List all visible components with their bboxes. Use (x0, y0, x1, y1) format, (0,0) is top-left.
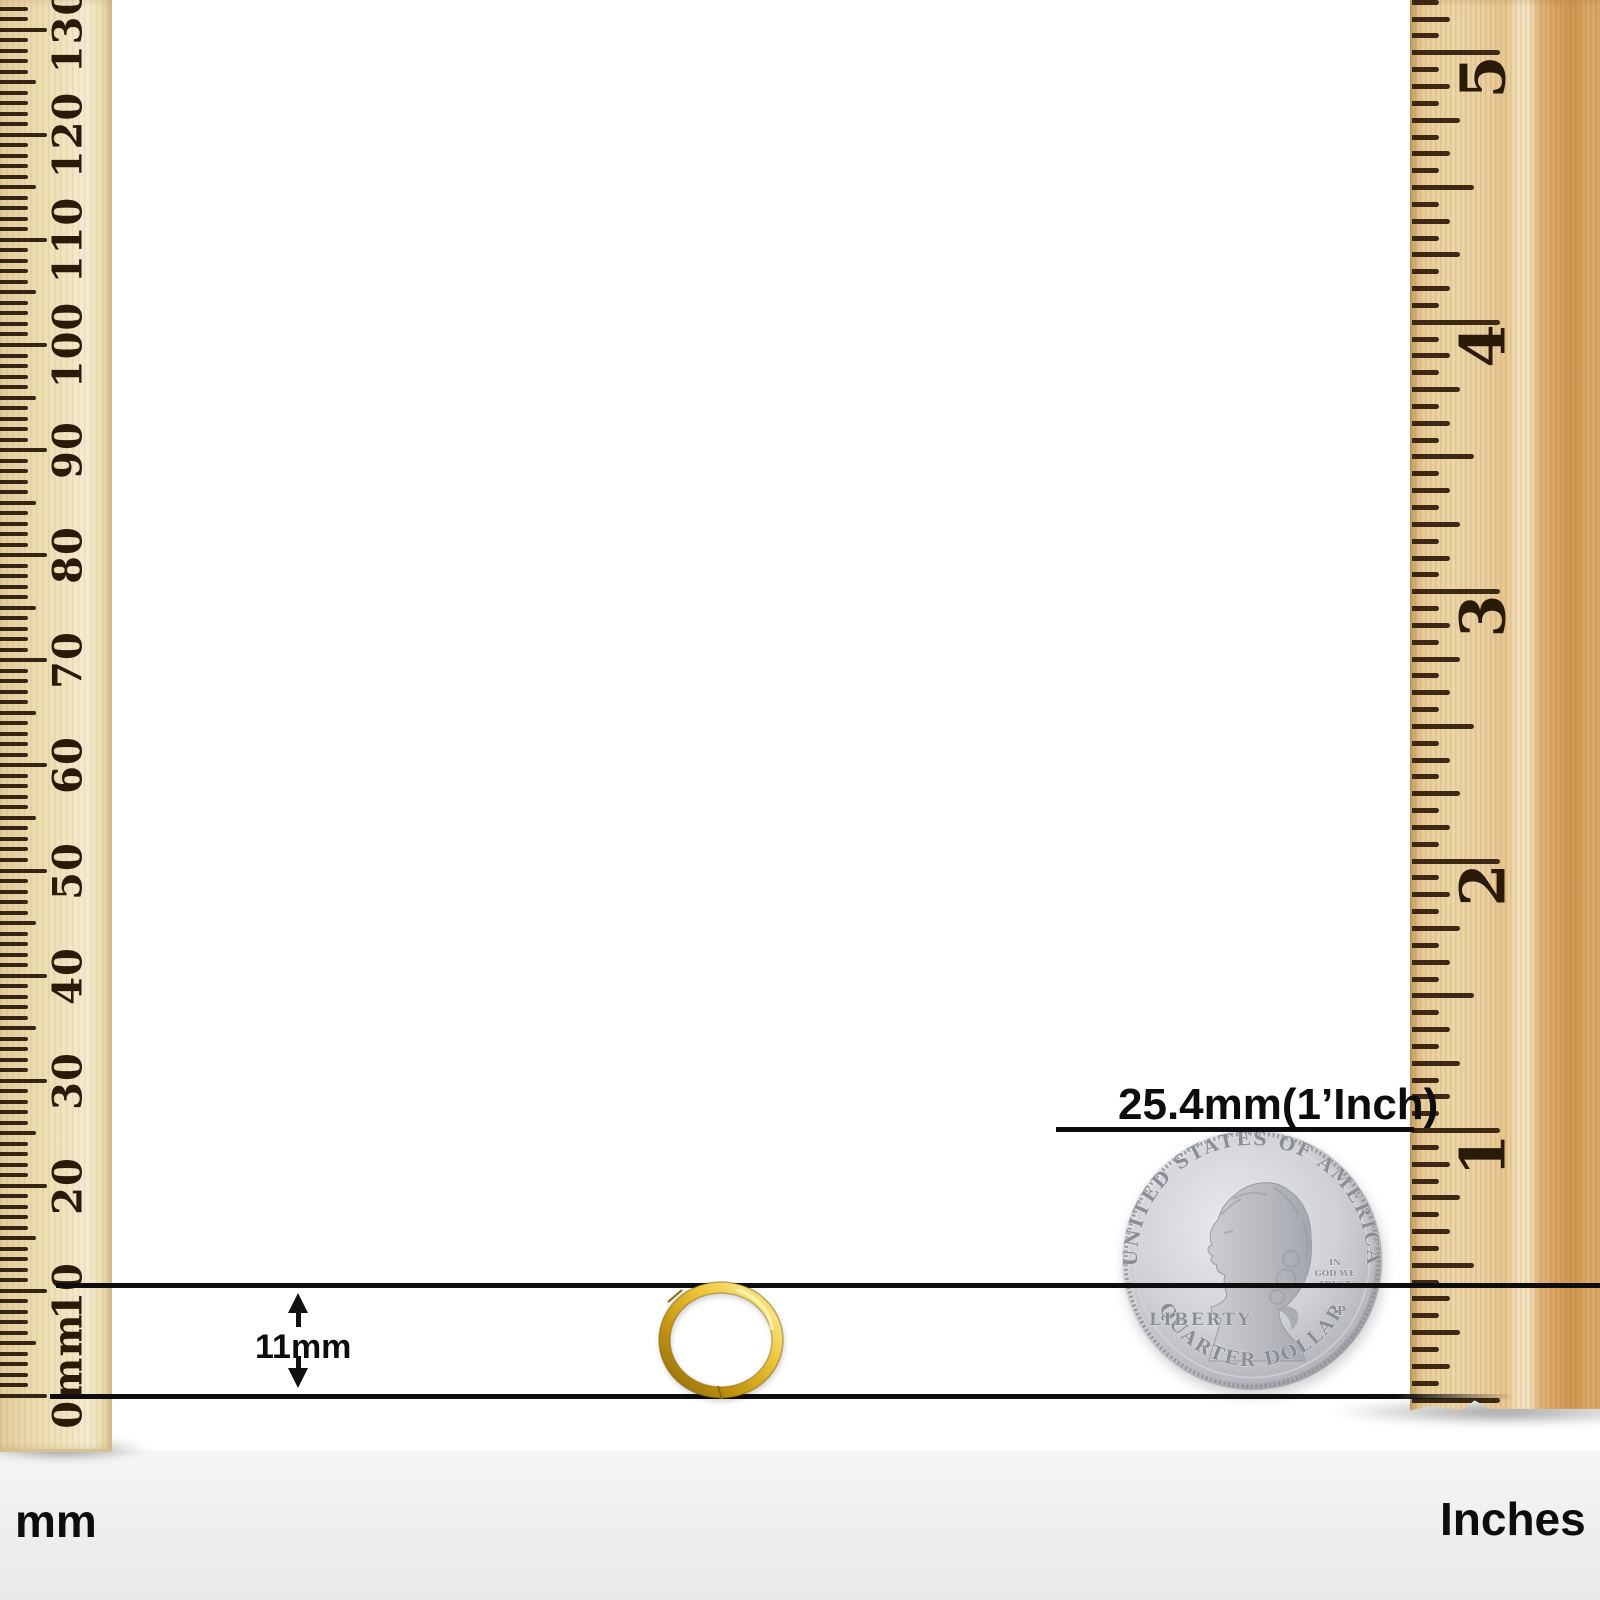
inch-ruler-tick (1412, 758, 1450, 763)
mm-ruler-tick (0, 259, 28, 263)
up-arrow-icon (288, 1293, 308, 1313)
mm-ruler-tick (0, 122, 28, 126)
mm-ruler-tick (0, 175, 28, 179)
mm-ruler-tick (0, 1058, 28, 1062)
mm-ruler-tick (0, 133, 47, 137)
mm-ruler-tick (0, 343, 47, 347)
mm-ruler-tick (0, 490, 28, 494)
inch-ruler-tick (1412, 1364, 1450, 1369)
inch-ruler-tick (1412, 1296, 1450, 1301)
mm-ruler-tick (0, 690, 28, 694)
gold-hoop-earring (652, 1274, 790, 1406)
inch-ruler-tick (1412, 943, 1439, 948)
mm-ruler-tick (0, 869, 47, 873)
mm-ruler-tick (0, 1278, 28, 1282)
inch-ruler-tick (1412, 387, 1460, 392)
inch-ruler-tick (1412, 640, 1439, 645)
mm-ruler-tick (0, 112, 28, 116)
mm-ruler-tick (0, 574, 28, 578)
mm-ruler-tick (0, 974, 47, 978)
inch-ruler-tick (1412, 454, 1474, 459)
coin-motto-line1: IN (1329, 1258, 1341, 1268)
hoop-outer-edge (659, 1282, 783, 1398)
mm-ruler-tick (0, 669, 28, 673)
mm-ruler-tick (0, 269, 28, 273)
inch-ruler-tick (1412, 977, 1439, 982)
mm-ruler-tick (0, 984, 28, 988)
mm-ruler-tick (0, 942, 28, 946)
inch-ruler-tick (1412, 825, 1450, 830)
mm-ruler-tick (0, 364, 28, 368)
mm-ruler-tick (0, 1383, 28, 1387)
size-chart-image: 0mm102030405060708090100110120130 12345 (0, 0, 1600, 1600)
mm-ruler-tick (0, 511, 28, 515)
mm-ruler-tick (0, 795, 28, 799)
mm-ruler-tick (0, 1005, 28, 1009)
mm-ruler-tick (0, 732, 28, 736)
mm-ruler-tick (0, 700, 28, 704)
inch-ruler-tick (1412, 606, 1439, 611)
inch-ruler-tick (1412, 875, 1439, 880)
mm-tick-label: 130 (45, 0, 92, 73)
inch-ruler-tick (1412, 690, 1450, 695)
inch-ruler-tick (1412, 1162, 1450, 1167)
inch-ruler-tick (1412, 438, 1439, 443)
mm-ruler-tick (0, 469, 28, 473)
inch-ruler: 12345 (1410, 0, 1600, 1416)
coin-motto-line2: GOD WE (1314, 1269, 1356, 1279)
mm-ruler-tick (0, 1184, 47, 1188)
mm-ruler-tick (0, 1163, 28, 1167)
mm-tick-label: 10 (45, 1262, 92, 1320)
inch-tick-label: 3 (1447, 594, 1520, 637)
mm-ruler-tick (0, 1394, 47, 1398)
mm-ruler-tick (0, 438, 28, 442)
inch-ruler-tick (1412, 774, 1439, 779)
mm-ruler-tick (0, 1110, 28, 1114)
mm-ruler-tick (0, 1121, 28, 1125)
mm-ruler-tick (0, 1310, 28, 1314)
inch-ruler-tick (1412, 1381, 1439, 1386)
inch-ruler-tick (1412, 589, 1500, 594)
ten-mm-reference-line (56, 1283, 1600, 1288)
mm-ruler-tick (0, 1236, 36, 1240)
mm-ruler-tick (0, 332, 28, 336)
mm-ruler-tick (0, 847, 28, 851)
inch-ruler-tick (1412, 1313, 1439, 1318)
mm-ruler-tick (0, 164, 28, 168)
inch-ruler-tick (1412, 808, 1439, 813)
mm-ruler-tick (0, 1268, 28, 1272)
mm-ruler-tick (0, 1037, 28, 1041)
mm-tick-label: 120 (45, 92, 92, 179)
mm-tick-label: 50 (45, 842, 92, 900)
mm-ruler-tick (0, 417, 28, 421)
mm-ruler-tick (0, 1362, 28, 1366)
mm-ruler-tick (0, 763, 47, 767)
inch-ruler-tick (1412, 1044, 1439, 1049)
mm-ruler-tick (0, 354, 28, 358)
mm-ruler-tick (0, 248, 28, 252)
mm-ruler-tick (0, 1341, 36, 1345)
inch-ruler-tick (1412, 707, 1439, 712)
inch-tick-label: 5 (1447, 55, 1520, 98)
inch-ruler-tick (1412, 556, 1450, 561)
mm-ruler-tick (0, 995, 28, 999)
inch-ruler-tick (1412, 892, 1450, 897)
inch-ruler-tick (1412, 1061, 1460, 1066)
inch-tick-label: 4 (1447, 325, 1520, 368)
inch-ruler-tick (1412, 151, 1450, 156)
inch-ruler-tick (1412, 219, 1450, 224)
mm-ruler-tick (0, 658, 47, 662)
inch-ruler-tick (1412, 572, 1439, 577)
inch-ruler-tick (1412, 252, 1460, 257)
inch-ruler-tick (1412, 539, 1439, 544)
mm-ruler-tick (0, 143, 28, 147)
inch-ruler-tick (1412, 505, 1439, 510)
inch-ruler-tick (1412, 471, 1439, 476)
inch-ruler-tick (1412, 1195, 1460, 1200)
inch-ruler-tick (1412, 1010, 1439, 1015)
mm-ruler-tick (0, 627, 28, 631)
millimeter-ruler: 0mm102030405060708090100110120130 (0, 0, 112, 1452)
mm-tick-label: 40 (45, 947, 92, 1005)
mm-ruler-tick (0, 900, 28, 904)
mm-ruler-tick (0, 290, 36, 294)
mm-ruler-tick (0, 1089, 28, 1093)
inch-ruler-tick (1412, 1179, 1439, 1184)
inch-ruler-tick (1412, 1347, 1439, 1352)
mm-ruler-tick (0, 91, 28, 95)
inch-ruler-tick (1412, 993, 1474, 998)
mm-ruler-tick (0, 1205, 28, 1209)
mm-ruler-tick (0, 837, 28, 841)
mm-ruler-tick (0, 963, 28, 967)
inch-ruler-tick (1412, 623, 1450, 628)
inch-ruler-tick (1412, 1212, 1439, 1217)
mm-ruler-tick (0, 742, 28, 746)
mm-ruler-tick (0, 911, 28, 915)
mm-ruler-tick (0, 7, 28, 11)
mm-ruler-tick (0, 1352, 28, 1356)
inch-ruler-tick (1412, 118, 1460, 123)
mm-ruler-tick (0, 1173, 28, 1177)
mm-ruler-tick (0, 206, 28, 210)
inch-ruler-tick (1412, 0, 1439, 5)
mm-ruler-tick (0, 816, 36, 820)
mm-ruler-tick (0, 637, 28, 641)
mm-tick-label: 90 (45, 421, 92, 479)
mm-tick-label: 70 (45, 631, 92, 689)
down-arrow-icon (288, 1368, 308, 1388)
mm-ruler-tick (0, 1142, 28, 1146)
mm-ruler-tick (0, 217, 28, 221)
mm-ruler-tick (0, 543, 28, 547)
coin-mint-mark: P (1337, 1304, 1346, 1318)
mm-ruler-tick (0, 385, 28, 389)
inch-ruler-tick (1412, 404, 1439, 409)
mm-ruler-tick (0, 532, 28, 536)
hoop-inner-edge (670, 1293, 772, 1387)
inch-ruler-tick (1412, 185, 1474, 190)
mm-unit-label: mm (15, 1494, 97, 1548)
mm-ruler-tick (0, 858, 28, 862)
mm-ruler-tick (0, 406, 28, 410)
mm-ruler-tick (0, 1047, 28, 1051)
mm-ruler-tick (0, 322, 28, 326)
mm-ruler-tick (0, 1152, 28, 1156)
quarter-coin: UNITED STATES OF AMERICA QUARTER DOLLAR … (1121, 1129, 1383, 1391)
inch-ruler-tick (1412, 337, 1439, 342)
inch-ruler-tick (1412, 17, 1450, 22)
mm-ruler-tick (0, 396, 36, 400)
coin-liberty-text: LIBERTY (1149, 1310, 1252, 1330)
mm-ruler-tick (0, 805, 28, 809)
mm-tick-label: 30 (45, 1052, 92, 1110)
mm-ruler-tick (0, 932, 28, 936)
mm-ruler-tick (0, 311, 28, 315)
mm-ruler-tick (0, 522, 28, 526)
mm-ruler-tick (0, 238, 47, 242)
mm-tick-label: 20 (45, 1157, 92, 1215)
bottom-strip (0, 1450, 1600, 1600)
mm-tick-label: 100 (45, 302, 92, 389)
mm-ruler-tick (0, 953, 28, 957)
inch-ruler-tick (1412, 960, 1450, 965)
mm-ruler-tick (0, 553, 47, 557)
inch-ruler-tick (1412, 1027, 1450, 1032)
earring-size-annotation: 11mm (255, 1328, 351, 1367)
mm-tick-label: 60 (45, 737, 92, 795)
inch-tick-label: 1 (1447, 1133, 1520, 1176)
mm-ruler-tick (0, 1016, 28, 1020)
mm-ruler-tick (0, 17, 28, 21)
inch-ruler-tick (1412, 673, 1439, 678)
mm-ruler-tick (0, 784, 28, 788)
mm-ruler-tick (0, 38, 28, 42)
mm-ruler-tick (0, 49, 28, 53)
mm-ruler-tick (0, 80, 36, 84)
mm-ruler-tick (0, 1257, 28, 1261)
inches-unit-label: Inches (1440, 1492, 1586, 1546)
inch-ruler-tick (1412, 488, 1450, 493)
inch-ruler-tick (1412, 909, 1439, 914)
mm-ruler-tick (0, 280, 28, 284)
mm-ruler-tick (0, 59, 28, 63)
inch-ruler-tick (1412, 303, 1439, 308)
inch-ruler-tick (1412, 1145, 1439, 1150)
inch-ruler-tick (1412, 1246, 1439, 1251)
inch-ruler-tick (1412, 168, 1439, 173)
mm-ruler-tick (0, 1100, 28, 1104)
mm-ruler-tick (0, 196, 28, 200)
mm-ruler-tick (0, 616, 28, 620)
inch-ruler-tick (1412, 101, 1439, 106)
inch-ruler-tick (1412, 791, 1460, 796)
mm-ruler-tick (0, 1299, 28, 1303)
mm-ruler-tick (0, 1289, 47, 1293)
mm-ruler-tick (0, 585, 28, 589)
mm-ruler-tick (0, 154, 28, 158)
mm-ruler-tick (0, 879, 28, 883)
mm-ruler-tick (0, 1226, 28, 1230)
mm-ruler-tick (0, 375, 28, 379)
inch-ruler-tick (1412, 842, 1439, 847)
mm-ruler-tick (0, 28, 47, 32)
up-arrow-stem (296, 1311, 301, 1327)
inch-ruler-tick (1412, 286, 1450, 291)
mm-ruler-tick (0, 1131, 36, 1135)
mm-ruler-tick (0, 1194, 28, 1198)
inch-ruler-tick (1412, 135, 1439, 140)
coin-size-annotation: 25.4mm(1’Inch) (1118, 1080, 1438, 1130)
inch-ruler-tick (1412, 1229, 1450, 1234)
mm-ruler-tick (0, 606, 36, 610)
mm-ruler-tick (0, 890, 28, 894)
inch-ruler-tick (1412, 67, 1439, 72)
mm-ruler-tick (0, 921, 36, 925)
mm-tick-label: 110 (45, 197, 92, 284)
mm-ruler-tick (0, 1247, 28, 1251)
inch-ruler-tick (1412, 926, 1460, 931)
mm-ruler-tick (0, 1373, 28, 1377)
mm-ruler-tick (0, 1320, 28, 1324)
inch-ruler-tick (1412, 84, 1450, 89)
mm-ruler-tick (0, 774, 28, 778)
mm-tick-label: 0mm (45, 1313, 92, 1428)
inch-ruler-tick (1412, 353, 1450, 358)
mm-ruler-tick (0, 185, 36, 189)
mm-ruler-tick (0, 227, 28, 231)
mm-ruler-tick (0, 1079, 47, 1083)
mm-ruler-tick (0, 101, 28, 105)
inch-ruler-tick (1412, 421, 1450, 426)
mm-ruler-tick (0, 564, 28, 568)
inch-ruler-tick (1412, 522, 1460, 527)
inch-ruler-tick (1412, 724, 1474, 729)
mm-ruler-tick (0, 595, 28, 599)
mm-ruler-tick (0, 721, 28, 725)
inch-ruler-tick (1412, 202, 1439, 207)
inch-ruler-tick (1412, 269, 1439, 274)
mm-tick-label: 80 (45, 526, 92, 584)
mm-ruler-tick (0, 1026, 36, 1030)
inch-tick-label: 2 (1447, 864, 1520, 907)
inch-ruler-tick (1412, 657, 1460, 662)
mm-ruler-tick (0, 648, 28, 652)
mm-ruler-tick (0, 1068, 28, 1072)
mm-ruler-tick (0, 826, 28, 830)
mm-ruler-tick (0, 679, 28, 683)
inch-ruler-tick (1412, 741, 1439, 746)
mm-ruler-tick (0, 459, 28, 463)
mm-ruler-tick (0, 1215, 28, 1219)
inch-ruler-tick (1412, 370, 1439, 375)
inch-ruler-tick (1412, 1330, 1460, 1335)
mm-ruler-tick (0, 480, 28, 484)
mm-ruler-tick (0, 1331, 28, 1335)
mm-ruler-tick (0, 501, 36, 505)
inch-ruler-tick (1412, 236, 1439, 241)
inch-ruler-tick (1412, 33, 1439, 38)
mm-ruler-tick (0, 70, 28, 74)
mm-ruler-tick (0, 427, 28, 431)
mm-ruler-tick (0, 301, 28, 305)
inch-ruler-tick (1412, 1263, 1474, 1268)
mm-ruler-tick (0, 753, 28, 757)
mm-ruler-tick (0, 711, 36, 715)
mm-ruler-tick (0, 448, 47, 452)
